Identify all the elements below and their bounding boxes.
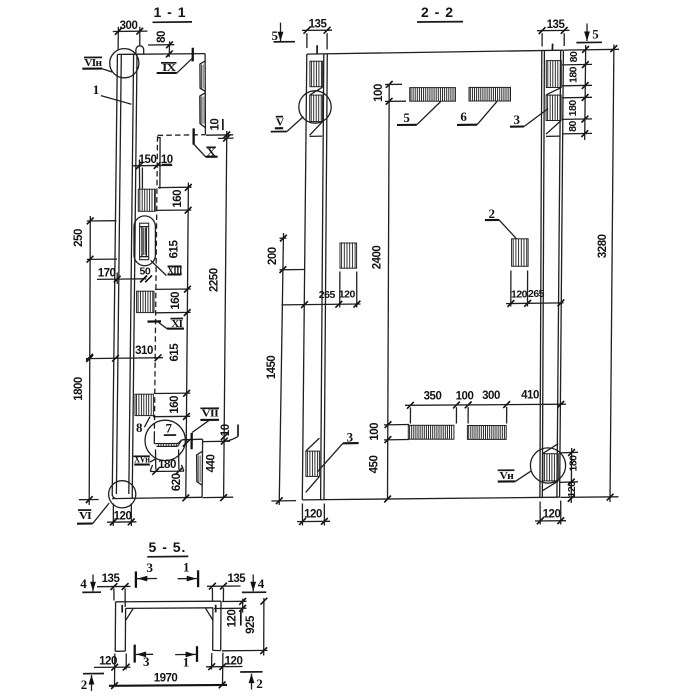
svg-text:2: 2 — [256, 676, 263, 691]
svg-text:135: 135 — [102, 573, 121, 585]
svg-text:120: 120 — [227, 610, 239, 628]
svg-text:120: 120 — [99, 656, 117, 668]
svg-text:410: 410 — [521, 389, 539, 401]
svg-text:440: 440 — [205, 455, 217, 473]
svg-text:1800: 1800 — [73, 377, 85, 401]
svg-text:160: 160 — [169, 396, 181, 414]
svg-text:VII: VII — [202, 408, 219, 419]
svg-text:180: 180 — [568, 66, 580, 83]
svg-text:7: 7 — [166, 421, 173, 436]
svg-text:135: 135 — [227, 573, 246, 585]
svg-text:2400: 2400 — [372, 246, 384, 270]
svg-text:1: 1 — [183, 559, 190, 574]
svg-text:5: 5 — [272, 28, 279, 43]
svg-text:310: 310 — [135, 345, 153, 357]
svg-text:120: 120 — [114, 511, 132, 523]
svg-text:4: 4 — [258, 576, 265, 591]
svg-text:5: 5 — [403, 110, 410, 125]
svg-text:1: 1 — [93, 82, 100, 97]
svg-text:1 - 1: 1 - 1 — [153, 4, 186, 20]
svg-text:615: 615 — [169, 240, 181, 259]
svg-text:10: 10 — [220, 424, 232, 436]
svg-text:180: 180 — [567, 100, 579, 117]
svg-text:50: 50 — [140, 265, 151, 277]
svg-text:2250: 2250 — [208, 268, 220, 292]
svg-text:925: 925 — [245, 615, 257, 634]
svg-text:135: 135 — [309, 19, 328, 31]
svg-text:120: 120 — [543, 509, 561, 521]
svg-text:265: 265 — [528, 288, 545, 300]
svg-text:180: 180 — [568, 455, 580, 472]
svg-text:80: 80 — [567, 121, 579, 132]
svg-text:2: 2 — [488, 206, 495, 221]
svg-text:300: 300 — [482, 390, 500, 402]
svg-text:3280: 3280 — [597, 234, 609, 258]
svg-text:80: 80 — [568, 51, 580, 62]
svg-text:120: 120 — [339, 289, 356, 301]
svg-text:2: 2 — [81, 677, 88, 692]
svg-text:120: 120 — [511, 288, 528, 300]
svg-text:4: 4 — [80, 576, 87, 591]
svg-text:160: 160 — [172, 190, 184, 208]
svg-text:8: 8 — [136, 420, 143, 435]
svg-text:3: 3 — [514, 112, 521, 127]
svg-text:250: 250 — [73, 229, 85, 247]
svg-text:VI: VI — [79, 511, 92, 522]
svg-text:170: 170 — [98, 267, 116, 279]
svg-text:100: 100 — [369, 423, 381, 441]
svg-text:150: 150 — [139, 154, 157, 166]
svg-text:620: 620 — [171, 473, 183, 491]
svg-text:120: 120 — [304, 509, 322, 521]
svg-text:V: V — [276, 118, 285, 129]
svg-text:180: 180 — [158, 459, 176, 471]
svg-text:5 - 5.: 5 - 5. — [149, 539, 187, 555]
svg-text:1970: 1970 — [154, 672, 178, 684]
svg-text:200: 200 — [267, 247, 279, 265]
svg-text:350: 350 — [424, 391, 442, 403]
svg-text:5: 5 — [592, 27, 599, 42]
svg-text:450: 450 — [369, 456, 381, 474]
svg-text:100: 100 — [373, 84, 385, 102]
svg-text:80: 80 — [156, 31, 168, 43]
svg-text:135: 135 — [547, 19, 566, 31]
svg-text:Vн: Vн — [500, 471, 514, 482]
svg-text:1450: 1450 — [266, 356, 278, 380]
svg-text:615: 615 — [169, 343, 181, 362]
svg-text:160: 160 — [170, 292, 182, 310]
svg-text:10: 10 — [210, 119, 222, 131]
svg-text:265: 265 — [319, 289, 336, 301]
svg-text:120: 120 — [225, 655, 243, 667]
svg-text:120: 120 — [566, 481, 578, 498]
svg-text:VIн: VIн — [84, 58, 102, 69]
svg-text:300: 300 — [120, 20, 138, 32]
svg-text:2 - 2: 2 - 2 — [421, 4, 454, 20]
svg-text:6: 6 — [460, 109, 467, 124]
svg-text:100: 100 — [456, 390, 474, 402]
svg-text:3: 3 — [146, 560, 153, 575]
